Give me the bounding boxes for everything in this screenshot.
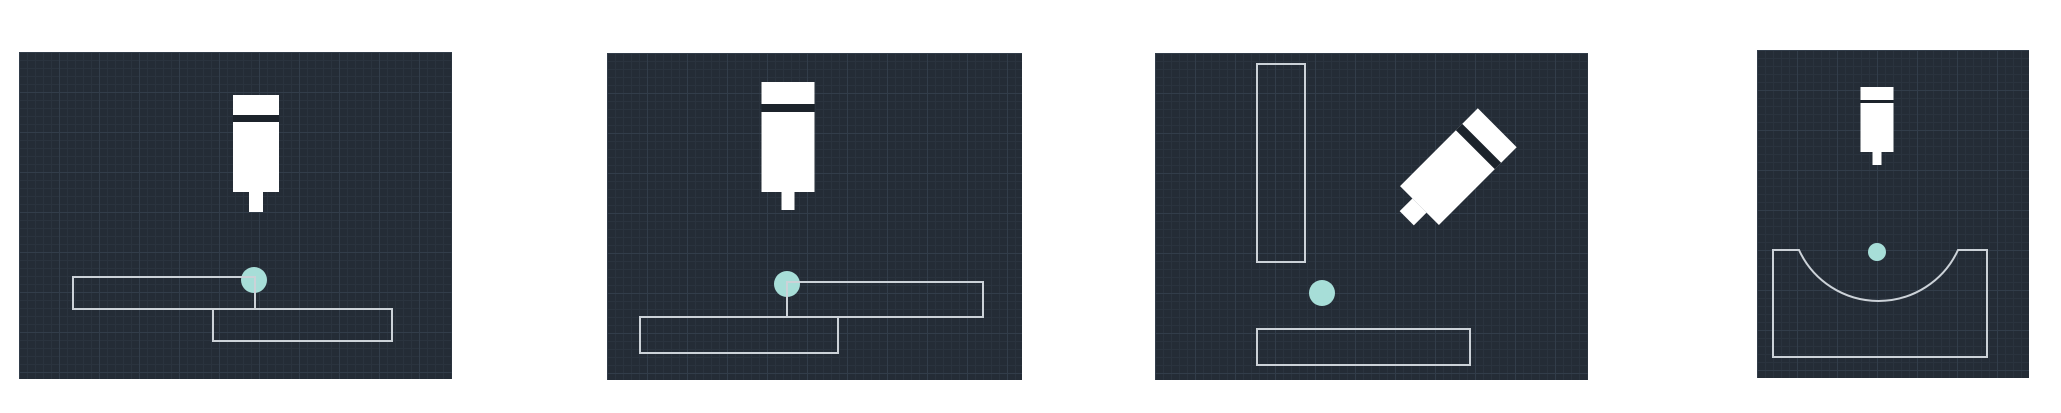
probe-tool-icon (1387, 108, 1516, 237)
cad-drawing (19, 52, 452, 379)
tool-body (1861, 87, 1894, 152)
touch-point-dot (1868, 243, 1886, 261)
pocket-outline (1773, 250, 1987, 357)
tool-stem (1873, 152, 1882, 165)
workpiece-outline (787, 282, 983, 317)
tool-stem (782, 192, 795, 210)
cad-drawing (607, 53, 1022, 380)
panel-1-cad-canvas (19, 52, 452, 379)
workpiece-outline (73, 277, 255, 309)
tool-band (762, 104, 815, 112)
cad-drawing (1757, 50, 2029, 378)
tool-band (233, 115, 279, 122)
workpiece-outline (213, 309, 392, 341)
tool-body (233, 95, 279, 192)
workpiece-outline (640, 317, 838, 353)
panel-2-cad-canvas (607, 53, 1022, 380)
cad-panel-strip (0, 0, 2061, 413)
probe-tool-icon (762, 82, 815, 210)
probe-tool-icon (1861, 87, 1894, 165)
workpiece-outline (1257, 64, 1305, 262)
cad-drawing (1155, 53, 1588, 380)
panel-4-cad-canvas (1757, 50, 2029, 378)
workpiece-outline (1257, 329, 1470, 365)
tool-stem (249, 192, 263, 212)
tool-body (762, 82, 815, 192)
panel-3-cad-canvas (1155, 53, 1588, 380)
touch-point-dot (1309, 280, 1335, 306)
tool-band (1861, 100, 1894, 103)
probe-tool-icon (233, 95, 279, 212)
